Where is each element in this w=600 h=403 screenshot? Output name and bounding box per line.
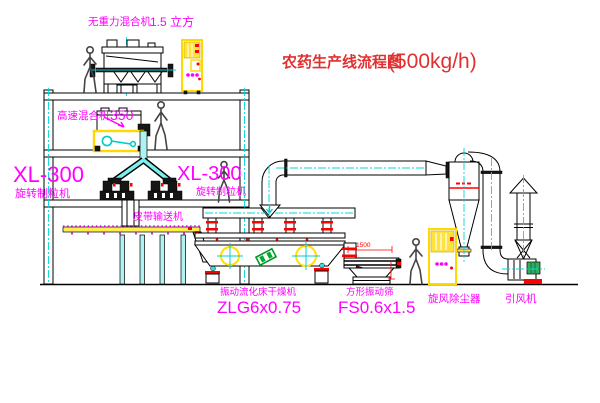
- bucket-elevator-1: [182, 40, 202, 94]
- drawing-capacity: (500kg/h): [388, 50, 477, 73]
- fan-base: [524, 279, 542, 284]
- induced-draft-fan: [502, 259, 545, 284]
- worker-figure: [155, 102, 167, 149]
- label-belt-conveyor: 皮带输送机: [133, 210, 183, 223]
- label-high-speed-mixer-spec: 350: [110, 107, 134, 123]
- bucket-elevator-2: [429, 229, 456, 284]
- label-dryer-name: 振动流化床干燥机: [220, 286, 297, 298]
- dimension-screen-length: 1500: [356, 242, 371, 249]
- dryer-port: [284, 218, 296, 233]
- label-granulator-left-name: 旋转制粒机: [15, 186, 70, 200]
- spring-support: [205, 266, 220, 283]
- gravity-free-mixer: [88, 37, 176, 96]
- label-high-speed-mixer: 高速混合机: [57, 109, 110, 122]
- label-granulator-right-model: XL-300: [177, 163, 242, 185]
- label-screen-name: 方形振动筛: [346, 286, 394, 298]
- floor-slab-3: [44, 93, 249, 100]
- dryer-port: [206, 218, 218, 233]
- label-granulator-right-name: 旋转制粒机: [196, 185, 246, 198]
- belt-conveyor: [63, 226, 211, 284]
- label-cyclone: 旋风除尘器: [428, 292, 481, 305]
- label-fan: 引风机: [505, 292, 537, 305]
- fan-motor: [527, 262, 540, 274]
- dryer-port: [252, 218, 264, 233]
- label-gravity-free-mixer-spec: 1.5 立方: [150, 14, 194, 29]
- worker-figure: [410, 239, 422, 284]
- label-dryer-model: ZLG6x0.75: [217, 298, 301, 317]
- label-gravity-free-mixer: 无重力混合机: [88, 15, 151, 28]
- process-flow-drawing: 农药生产线流程图 (500kg/h) 无重力混合机 1.5 立方 高速混合机 3…: [0, 0, 600, 403]
- vibrating-screen: [342, 243, 401, 284]
- dryer-port: [321, 218, 333, 233]
- fluid-bed-dryer: [195, 208, 355, 283]
- label-granulator-left-model: XL-300: [13, 162, 84, 187]
- label-screen-model: FS0.6x1.5: [338, 298, 416, 317]
- drawing-title: 农药生产线流程图: [281, 53, 402, 71]
